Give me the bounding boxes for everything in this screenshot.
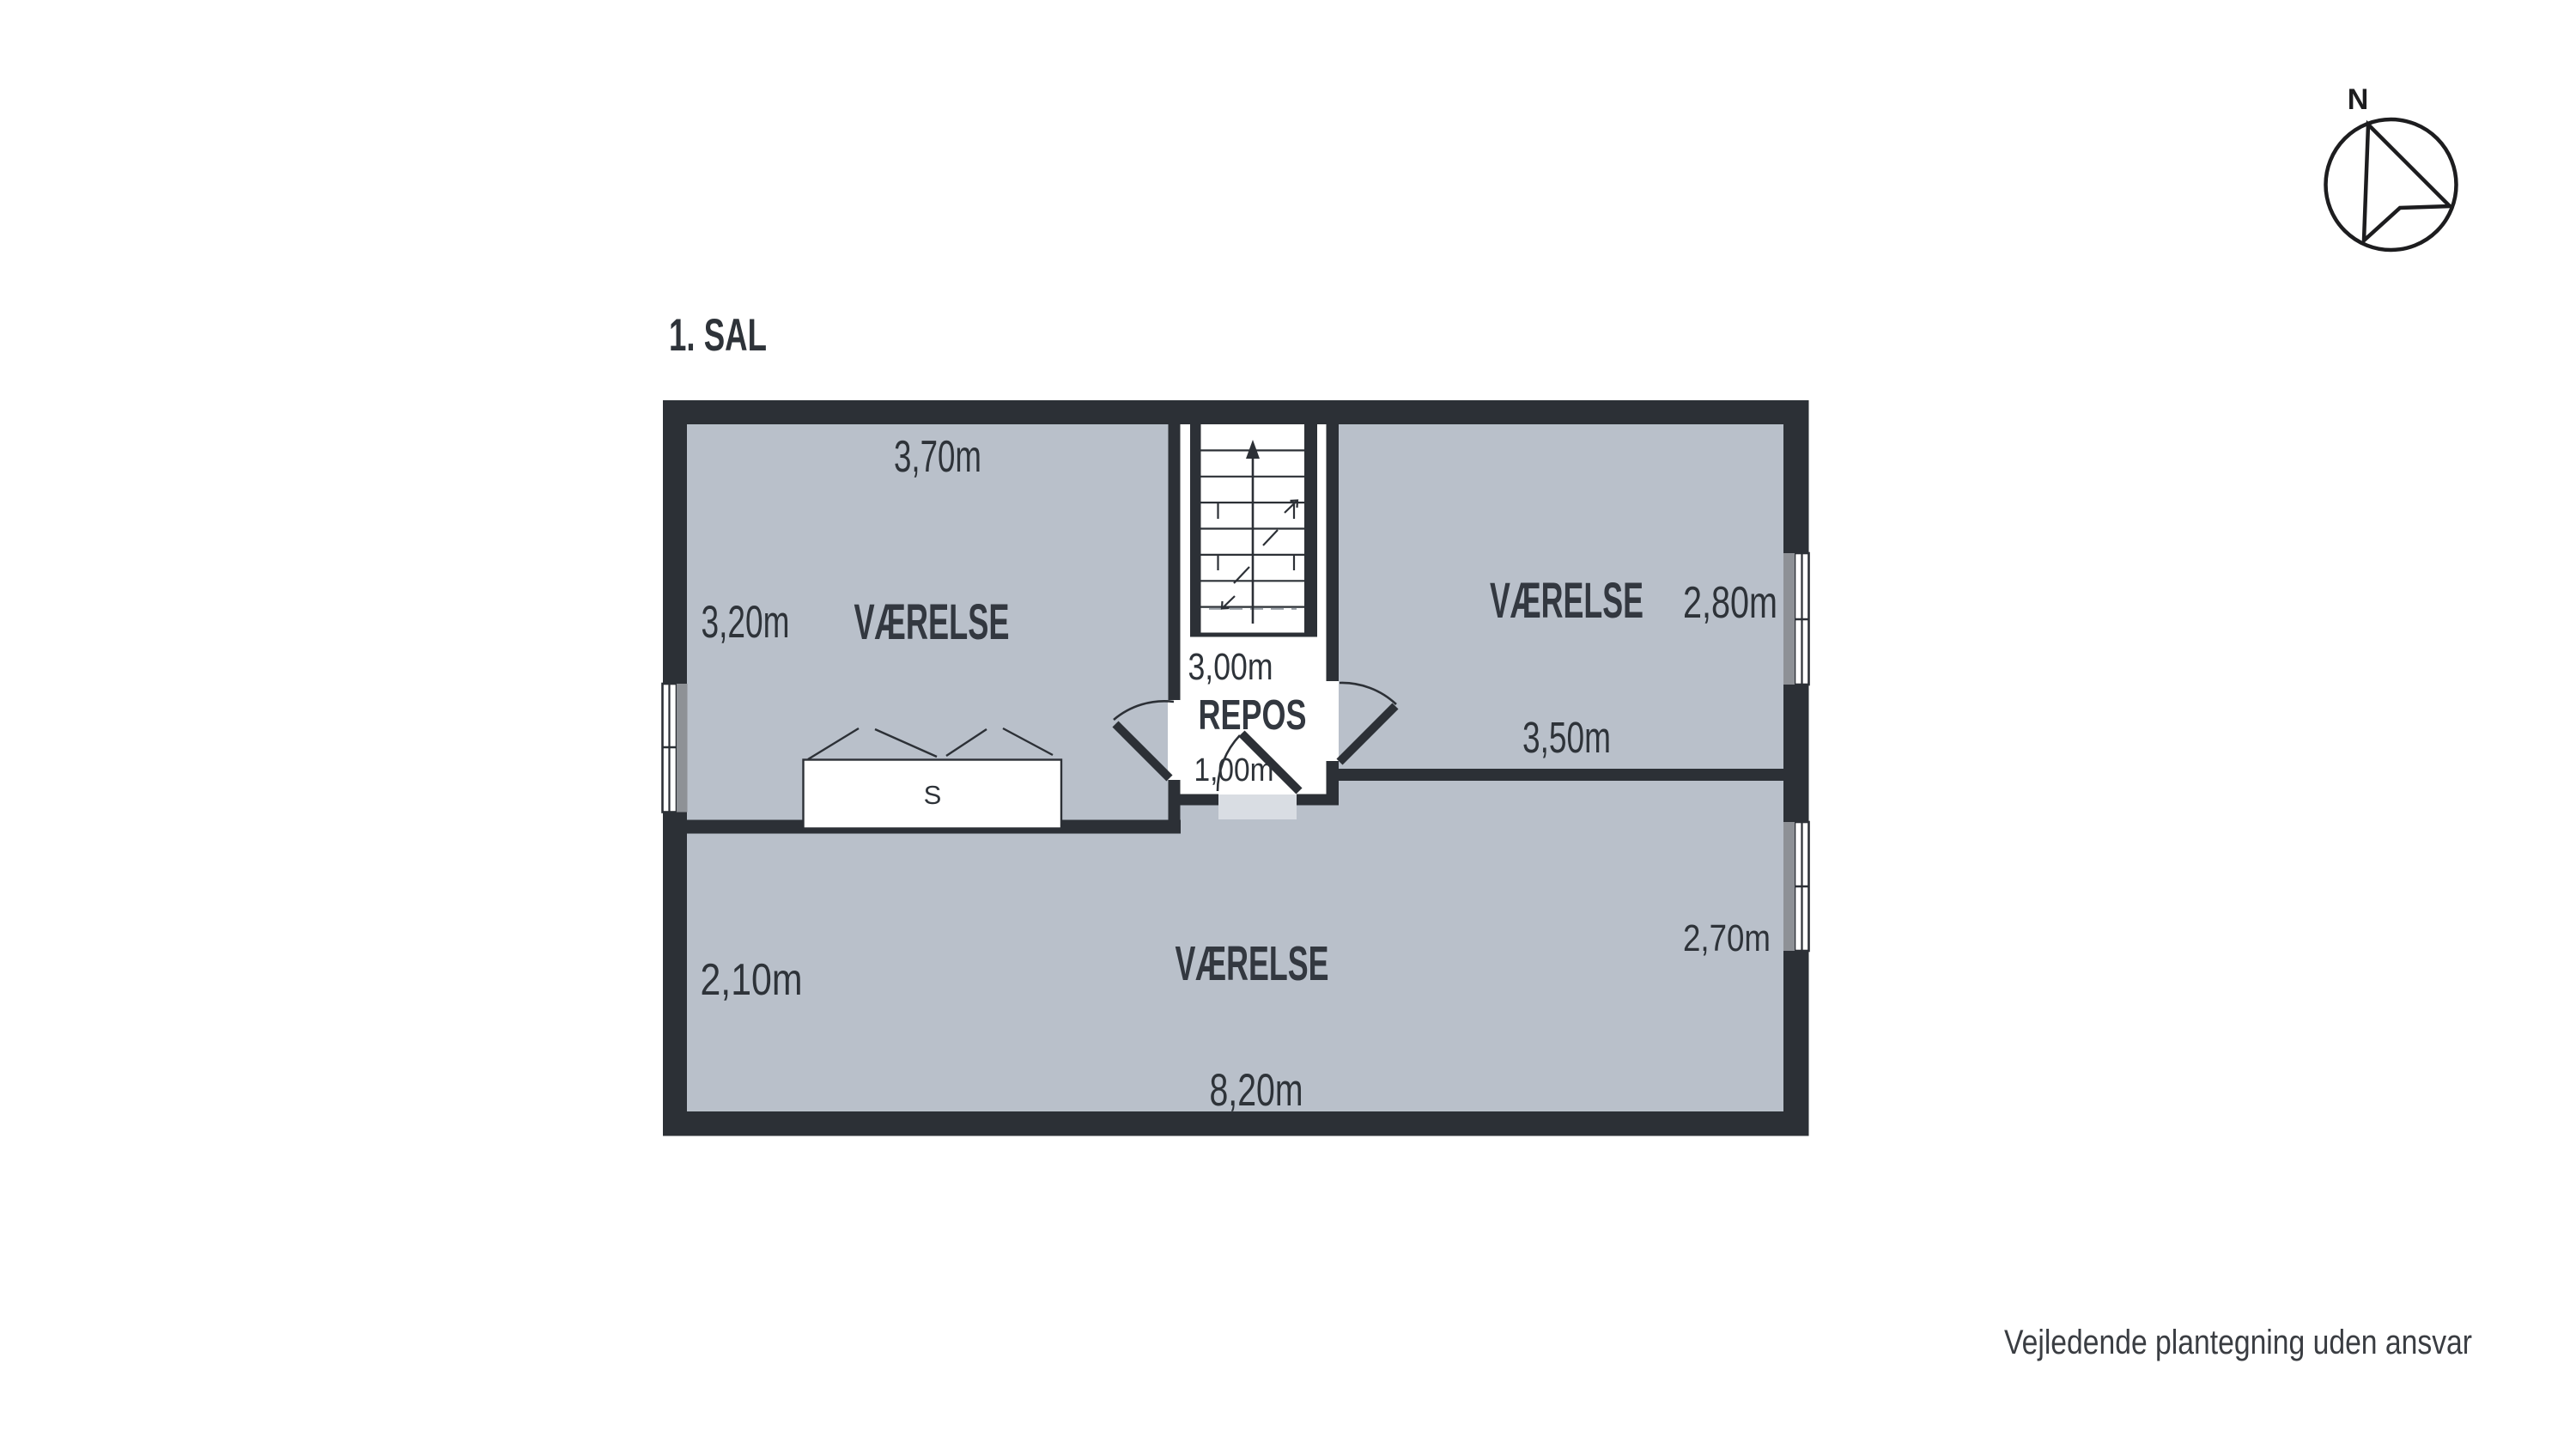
svg-text:3,20m: 3,20m [702, 597, 790, 648]
svg-text:VÆRELSE: VÆRELSE [854, 594, 1010, 650]
svg-text:1,00m: 1,00m [1194, 752, 1274, 788]
svg-text:VÆRELSE: VÆRELSE [1176, 936, 1329, 991]
svg-text:2,80m: 2,80m [1683, 578, 1777, 628]
svg-text:3,00m: 3,00m [1188, 646, 1273, 688]
svg-text:VÆRELSE: VÆRELSE [1490, 573, 1643, 629]
svg-text:3,70m: 3,70m [894, 432, 981, 482]
svg-text:3,50m: 3,50m [1522, 713, 1611, 762]
svg-text:Vejledende plantegning uden an: Vejledende plantegning uden ansvar [2004, 1324, 2472, 1361]
svg-text:REPOS: REPOS [1199, 692, 1307, 739]
svg-text:N: N [2348, 83, 2369, 116]
svg-text:8,20m: 8,20m [1210, 1065, 1303, 1116]
svg-text:2,70m: 2,70m [1683, 917, 1771, 959]
svg-text:S: S [924, 780, 942, 810]
svg-text:2,10m: 2,10m [701, 955, 803, 1005]
svg-text:1. SAL: 1. SAL [669, 310, 767, 361]
